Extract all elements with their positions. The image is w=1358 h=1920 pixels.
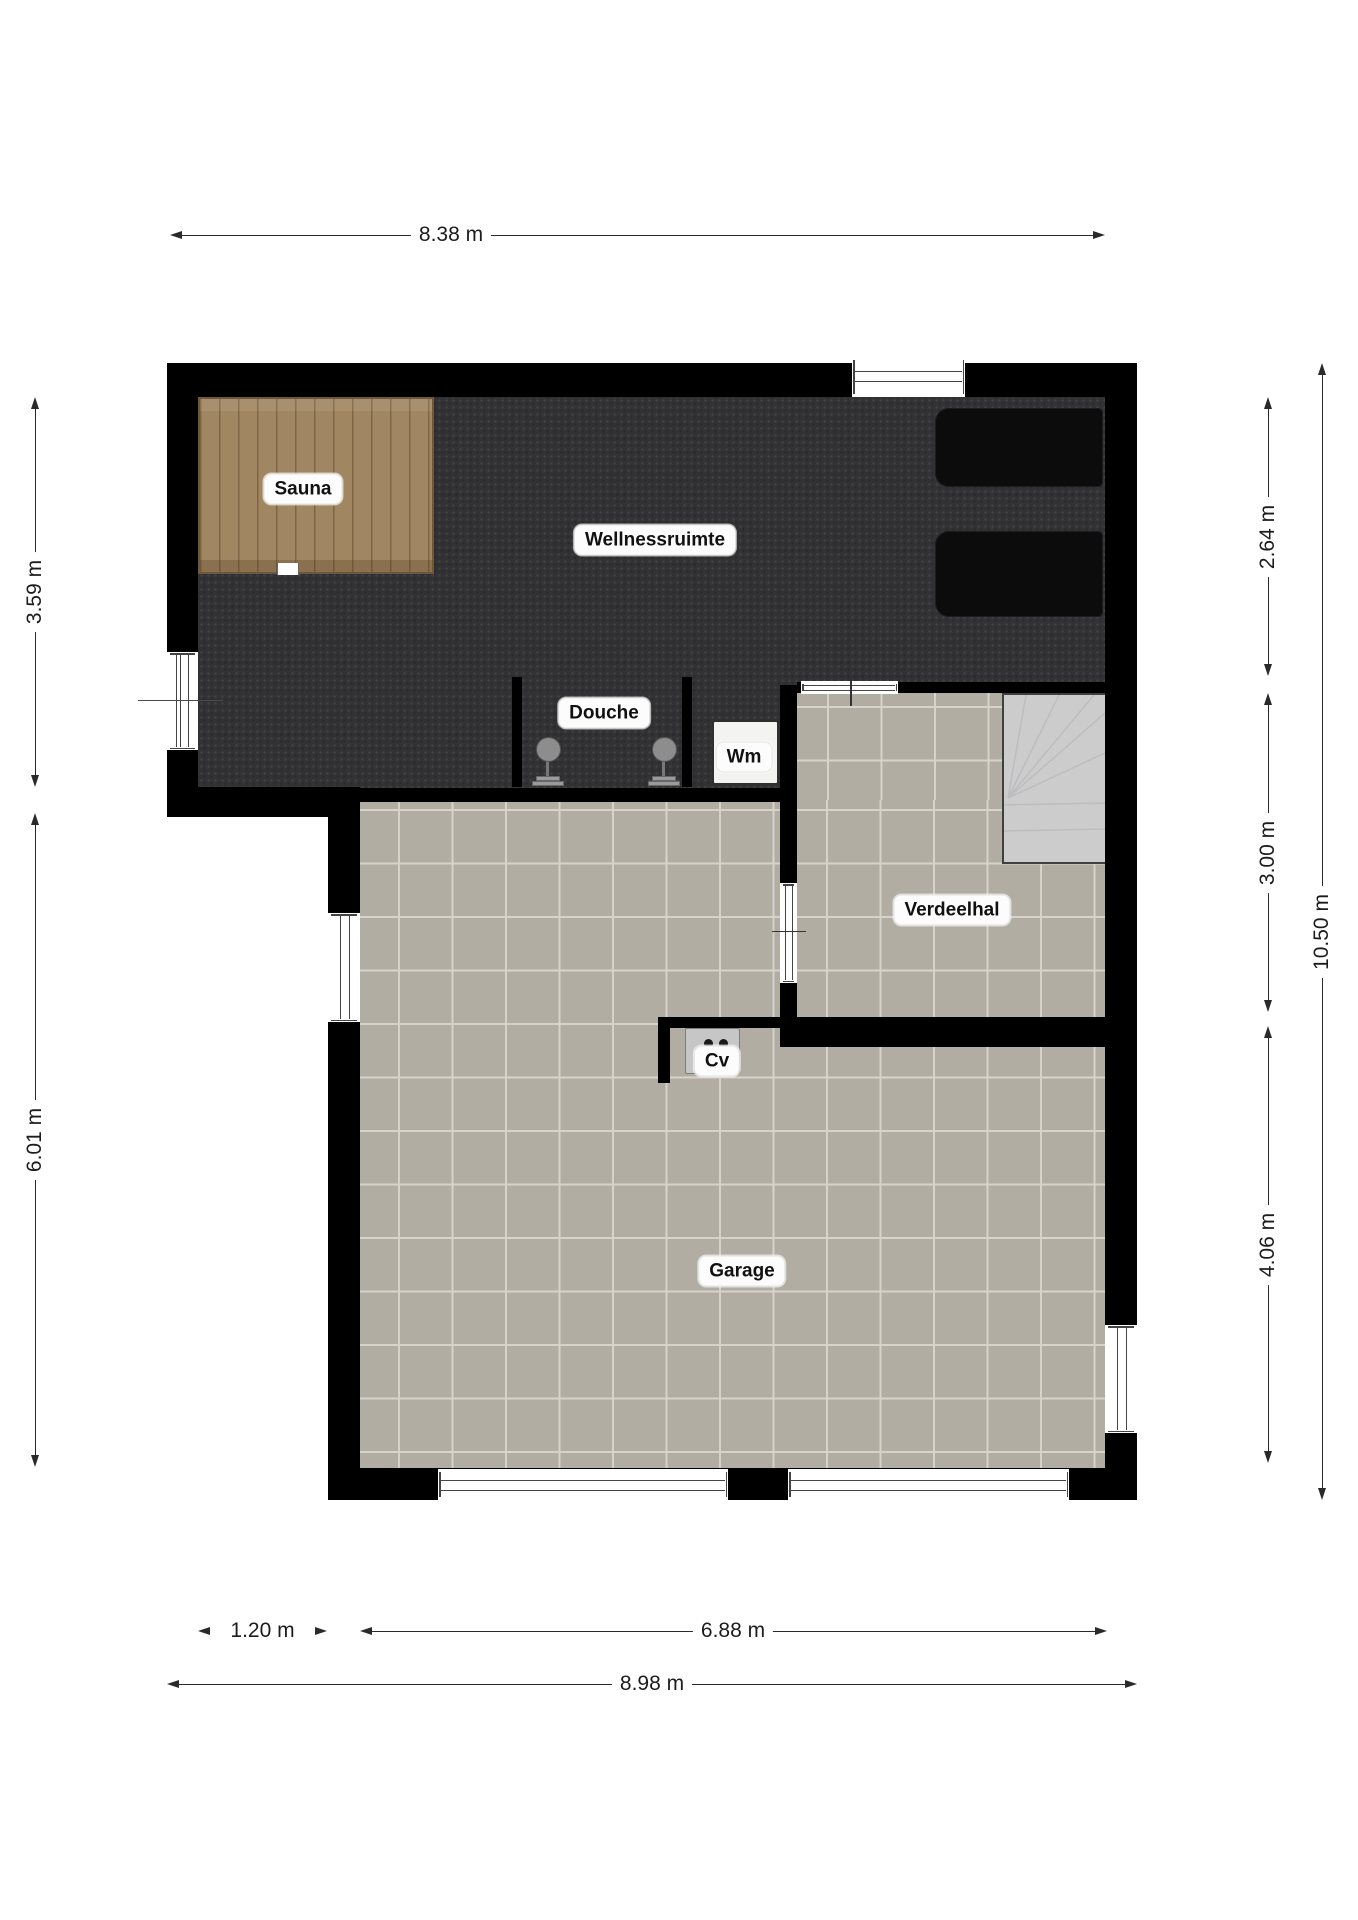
room-label-sauna: Sauna bbox=[263, 474, 342, 505]
wall-douche-stub-right bbox=[682, 677, 692, 787]
wall-garage-verdeelhal bbox=[780, 685, 797, 1047]
douche-area-floor bbox=[198, 693, 797, 800]
lounger-2 bbox=[935, 531, 1103, 617]
dimension-label: 3.59 m bbox=[22, 552, 48, 632]
door-frame-tick bbox=[850, 668, 852, 706]
shower-1-feet bbox=[532, 781, 564, 786]
staircase bbox=[1002, 693, 1111, 864]
dimension-label: 1.20 m bbox=[230, 1619, 294, 1643]
window-axis-tick bbox=[138, 700, 223, 701]
window-bottom-right bbox=[788, 1469, 1069, 1500]
dimension-label: 6.88 m bbox=[693, 1618, 773, 1644]
wall-douche-garage bbox=[360, 788, 797, 802]
shower-2-feet bbox=[648, 781, 680, 786]
dimension-label: 6.01 m bbox=[22, 1100, 48, 1180]
wall-verdeelhal-bottom bbox=[780, 1017, 1105, 1047]
window-left-garage bbox=[328, 913, 360, 1022]
dimension-label: 3.00 m bbox=[1255, 812, 1281, 892]
room-label-cv: Cv bbox=[694, 1046, 740, 1077]
window-left-wellness bbox=[167, 652, 198, 750]
wall-left-garage-exterior bbox=[328, 787, 360, 1500]
dimension-label: 8.98 m bbox=[612, 1671, 692, 1697]
shower-1-head-icon bbox=[536, 737, 561, 762]
room-label-douche: Douche bbox=[558, 698, 650, 729]
lounger-1 bbox=[935, 408, 1103, 487]
room-label-wm: Wm bbox=[716, 742, 773, 773]
window-top-wall bbox=[852, 357, 965, 397]
dimension-label: 4.06 m bbox=[1255, 1204, 1281, 1284]
dimension-label: 8.38 m bbox=[411, 222, 491, 248]
wall-cv-niche bbox=[658, 1017, 788, 1028]
dimension-label: 10.50 m bbox=[1309, 886, 1335, 978]
dimension-label: 2.64 m bbox=[1255, 496, 1281, 576]
shower-2-head-icon bbox=[652, 737, 677, 762]
window-bottom-left bbox=[438, 1469, 728, 1500]
wall-left-upper-exterior bbox=[167, 397, 198, 817]
room-label-verdeelhal: Verdeelhal bbox=[893, 895, 1010, 926]
door-garage-verdeelhal bbox=[780, 883, 797, 983]
floor-plan: Sauna Wellnessruimte Douche Wm Verdeelha… bbox=[0, 0, 1358, 1920]
wall-douche-stub-left bbox=[512, 677, 522, 787]
room-label-garage: Garage bbox=[698, 1256, 785, 1287]
staircase-steps-icon bbox=[1004, 695, 1105, 858]
room-label-wellnessruimte: Wellnessruimte bbox=[574, 525, 736, 556]
window-right-garage bbox=[1105, 1325, 1137, 1433]
wall-top-exterior bbox=[167, 363, 1137, 397]
door-axis-tick bbox=[772, 931, 806, 932]
sauna-door-opening bbox=[277, 563, 299, 575]
wall-cv-stub bbox=[658, 1017, 670, 1083]
